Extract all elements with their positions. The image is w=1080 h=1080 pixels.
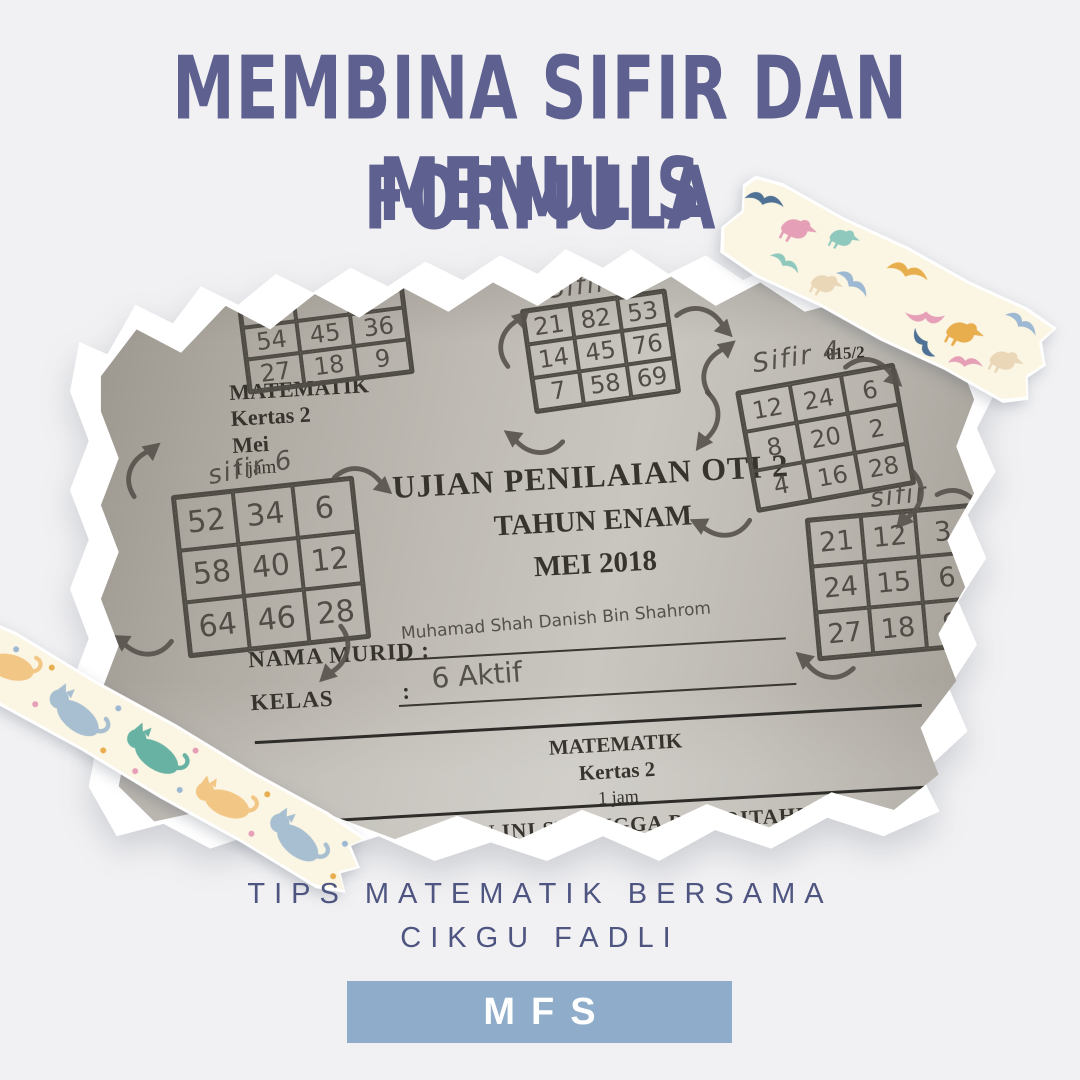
sifir-cell: 46: [244, 590, 309, 649]
curved-arrow-icon: [670, 385, 740, 458]
sifir-cell: 18: [869, 603, 926, 654]
footer-tagline-line1: TIPS MATEMATIK BERSAMA: [0, 878, 1080, 911]
class-colon: :: [401, 678, 411, 704]
sifir-cell: 16: [804, 453, 862, 501]
sifir-cell: 7: [533, 371, 585, 411]
sifir-cell: 69: [626, 358, 678, 398]
sifir-cell: 34: [233, 485, 298, 544]
curved-arrow-icon: [108, 434, 181, 504]
sifir-cell: 64: [185, 596, 250, 655]
name-underline: [396, 637, 786, 661]
poster-title-line2: FORMULA: [27, 148, 1053, 250]
sifir-cell: 18: [300, 346, 358, 385]
sifir-cell: 40: [239, 538, 304, 597]
sifir-cell: 58: [579, 364, 631, 404]
mfs-badge: MFS: [347, 981, 732, 1043]
student-name-handwritten: Muhamad Shah Danish Bin Shahrom: [400, 592, 790, 644]
footer-tagline-line2: CIKGU FADLI: [0, 922, 1080, 955]
sifir-grid-7: 21 82 53 14 45 76 7 58 69: [520, 288, 682, 414]
sifir-cell: 15: [865, 557, 922, 608]
class-label: KELAS: [250, 686, 334, 717]
sifir-cell: 27: [247, 353, 305, 392]
sifir-cell: 9: [354, 339, 412, 378]
sifir-cell: 12: [298, 531, 363, 590]
sifir-cell: 58: [180, 544, 245, 603]
student-class-handwritten: 6 Aktif: [430, 655, 523, 695]
sifir-cell: 21: [808, 516, 865, 567]
poster-canvas: { "poster": { "title_line1": "MEMBINA SI…: [0, 0, 1080, 1080]
sifir-cell: 52: [174, 492, 239, 551]
sifir-grid-label: Sifir 4: [750, 335, 843, 379]
sifir-cell: 4: [752, 462, 810, 510]
sifir-cell: 24: [812, 562, 869, 613]
